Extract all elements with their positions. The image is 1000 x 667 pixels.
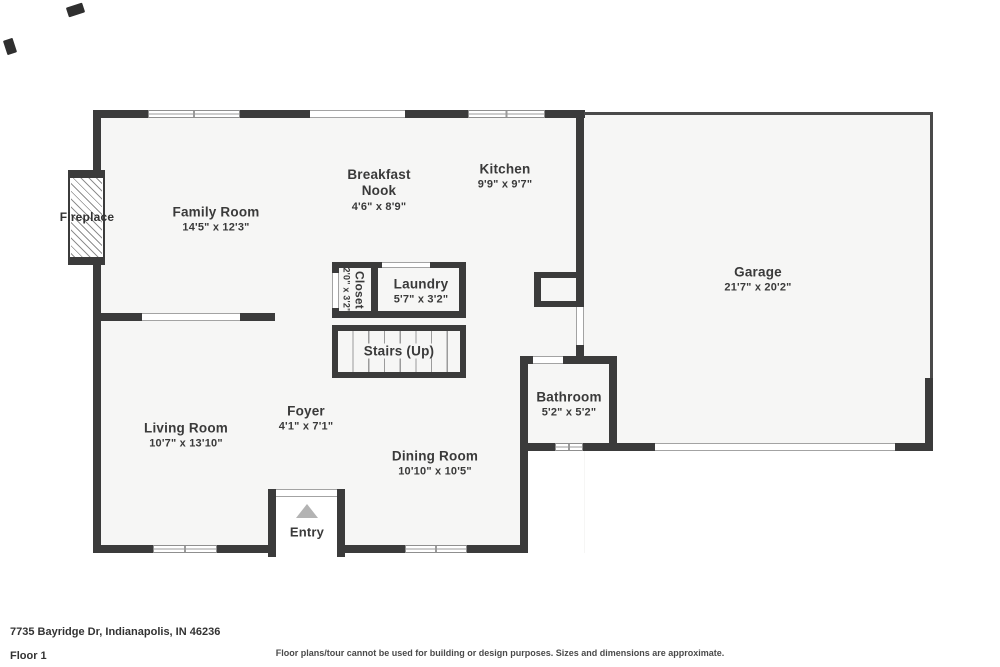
patio-door-opening: [310, 110, 405, 118]
room-name: Living Room: [144, 420, 228, 436]
closet-wall: [332, 262, 339, 273]
garage-wall: [895, 443, 933, 451]
wall: [93, 110, 148, 118]
exterior-area: [528, 451, 584, 553]
wall: [93, 545, 153, 553]
wall: [405, 110, 468, 118]
room-name: Garage: [724, 264, 791, 280]
bathroom-door-opening: [533, 356, 563, 364]
room-dims: 2'0" x 3'2": [342, 267, 352, 312]
garage-wall: [584, 112, 933, 115]
front-door-opening: [276, 489, 337, 497]
corner-mark: [66, 3, 85, 18]
bathroom-wall: [520, 356, 528, 553]
room-label-closet: Closet 2'0" x 3'2": [342, 267, 367, 312]
wall: [467, 545, 528, 553]
room-label-breakfast-nook: Breakfast Nook 4'6" x 8'9": [337, 167, 421, 213]
garage-wall: [925, 378, 933, 451]
wall: [240, 313, 275, 321]
room-label-laundry: Laundry 5'7" x 3'2": [394, 276, 449, 305]
room-dims: 10'7" x 13'10": [144, 438, 228, 450]
window: [153, 545, 217, 553]
window: [405, 545, 467, 553]
wall: [337, 545, 405, 553]
bathroom-window: [555, 443, 583, 451]
room-dims: 5'2" x 5'2": [536, 407, 601, 419]
bathroom-wall: [583, 443, 617, 451]
bathroom-wall: [609, 356, 617, 451]
room-name: Kitchen: [478, 161, 533, 177]
window: [148, 110, 240, 118]
room-name: Family Room: [173, 204, 260, 220]
room-dims: 10'10" x 10'5": [392, 466, 478, 478]
garage-entry-door: [576, 307, 584, 345]
hall-closet-wall: [534, 272, 584, 278]
stairs-wall: [332, 372, 466, 378]
entry-alcove-wall: [268, 489, 276, 557]
room-label-bathroom: Bathroom 5'2" x 5'2": [536, 389, 601, 418]
fireplace-label: Fireplace: [60, 210, 115, 224]
room-label-kitchen: Kitchen 9'9" x 9'7": [478, 161, 533, 190]
room-name: Foyer: [279, 403, 334, 419]
stairs-wall: [332, 325, 466, 331]
room-name: Breakfast Nook: [337, 167, 421, 200]
room-dims: 5'7" x 3'2": [394, 294, 449, 306]
wall: [240, 110, 310, 118]
stairs-wall: [460, 325, 466, 378]
room-label-dining-room: Dining Room 10'10" x 10'5": [392, 448, 478, 477]
room-dims: 14'5" x 12'3": [173, 222, 260, 234]
fireplace-cap: [68, 170, 105, 178]
floor-plan: Fireplace Family Room 14'5" x 12'3" Brea…: [0, 0, 1000, 667]
garage-vehicle-door: [655, 443, 895, 451]
closet-wall: [371, 262, 378, 318]
wall: [93, 313, 142, 321]
bathroom-wall: [520, 356, 533, 364]
room-name: Dining Room: [392, 448, 478, 464]
room-label-foyer: Foyer 4'1" x 7'1": [279, 403, 334, 432]
cased-opening: [142, 313, 240, 321]
corner-mark: [3, 38, 17, 55]
room-label-family-room: Family Room 14'5" x 12'3": [173, 204, 260, 233]
room-label-living-room: Living Room 10'7" x 13'10": [144, 420, 228, 449]
entry-direction-arrow: [296, 504, 318, 518]
room-name: Bathroom: [536, 389, 601, 405]
room-dims: 4'6" x 8'9": [337, 201, 421, 213]
room-name: Closet: [352, 267, 367, 312]
entry-label: Entry: [290, 525, 324, 540]
disclaimer-text: Floor plans/tour cannot be used for buil…: [276, 648, 725, 658]
laundry-wall: [459, 262, 466, 318]
room-dims: 9'9" x 9'7": [478, 179, 533, 191]
closet-door-opening: [332, 273, 339, 308]
room-dims: 4'1" x 7'1": [279, 421, 334, 433]
property-address: 7735 Bayridge Dr, Indianapolis, IN 46236: [10, 626, 220, 638]
laundry-door-opening: [382, 262, 430, 268]
room-name: Laundry: [394, 276, 449, 292]
bathroom-wall: [520, 443, 555, 451]
stairs-wall: [332, 325, 338, 378]
floor-number: Floor 1: [10, 650, 47, 662]
entry-alcove-wall: [337, 489, 345, 557]
window: [468, 110, 545, 118]
room-label-garage: Garage 21'7" x 20'2": [724, 264, 791, 293]
fireplace-cap: [68, 257, 105, 265]
stairs-label: Stairs (Up): [360, 344, 438, 359]
garage-wall: [617, 443, 655, 451]
garage-wall: [930, 112, 933, 378]
room-dims: 21'7" x 20'2": [724, 282, 791, 294]
